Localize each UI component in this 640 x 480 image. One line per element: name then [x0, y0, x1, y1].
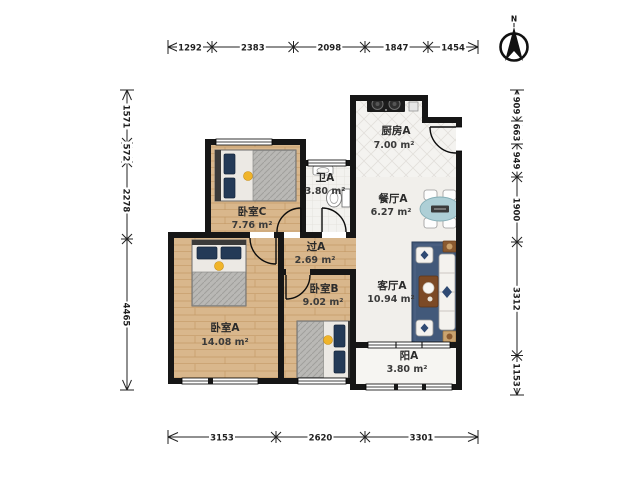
- room-name-dining: 餐厅A: [377, 192, 408, 205]
- bed-bedroom-a-icon: [192, 240, 246, 306]
- room-name-bedroom-c: 卧室C: [238, 205, 267, 218]
- dim-right-2: 663: [511, 124, 521, 142]
- dim-top-5: 1454: [441, 43, 465, 53]
- dim-top-3: 2098: [317, 43, 341, 53]
- compass: N: [501, 15, 528, 62]
- dimension-chain-right: 909 663 949 1900 3312 1153: [510, 90, 524, 395]
- room-name-living: 客厅A: [376, 279, 407, 292]
- sofa-set-icon: [412, 241, 456, 344]
- dim-right-1: 909: [511, 97, 521, 115]
- room-area-bedroom-a: 14.08 m²: [201, 337, 248, 348]
- window-balcony: [366, 384, 452, 390]
- dim-bottom-3: 3301: [410, 433, 434, 443]
- window-bedroom-a: [182, 378, 258, 384]
- entry-opening: [456, 127, 462, 151]
- room-area-dining: 6.27 m²: [371, 207, 412, 218]
- room-area-living: 10.94 m²: [367, 294, 414, 305]
- dimension-chain-bottom: 3153 2620 3301: [168, 430, 478, 444]
- dim-left-4: 4465: [121, 303, 131, 327]
- room-area-kitchen: 7.00 m²: [374, 140, 415, 151]
- window-bedroom-c: [216, 139, 272, 145]
- dimension-chain-top: 1292 2383 2098 1847 1454: [168, 40, 478, 54]
- dim-left-2: 572: [121, 144, 131, 162]
- dim-top-1: 1292: [178, 43, 202, 53]
- dimension-chain-left: 1571 572 2278 4465: [120, 90, 134, 390]
- compass-north-label: N: [511, 15, 517, 24]
- room-name-bedroom-b: 卧室B: [309, 282, 338, 295]
- room-area-bath: 3.80 m²: [305, 186, 346, 197]
- room-area-bedroom-b: 9.02 m²: [303, 297, 344, 308]
- floor-plan: 卧室C 7.76 m² 卫A 3.80 m² 厨房A 7.00 m² 餐厅A 6…: [0, 0, 640, 480]
- window-bedroom-b: [298, 378, 346, 384]
- dim-right-6: 1153: [511, 363, 521, 387]
- dim-right-5: 3312: [511, 287, 521, 311]
- room-name-kitchen: 厨房A: [381, 124, 411, 137]
- bed-bedroom-c-icon: [215, 150, 296, 201]
- room-area-balcony: 3.80 m²: [387, 364, 428, 375]
- window-bath: [308, 160, 346, 166]
- room-name-bedroom-a: 卧室A: [210, 321, 240, 334]
- dim-left-1: 1571: [121, 105, 131, 129]
- room-name-balcony: 阳A: [400, 350, 419, 362]
- floor-plan-page: 卧室C 7.76 m² 卫A 3.80 m² 厨房A 7.00 m² 餐厅A 6…: [0, 0, 640, 480]
- floor-hall-ext: [350, 238, 356, 269]
- dim-bottom-1: 3153: [210, 433, 234, 443]
- dim-right-4: 1900: [511, 198, 521, 222]
- dim-top-2: 2383: [241, 43, 265, 53]
- room-area-hall: 2.69 m²: [295, 255, 336, 266]
- room-area-bedroom-c: 7.76 m²: [232, 220, 273, 231]
- room-name-hall: 过A: [307, 240, 326, 253]
- dim-left-3: 2278: [121, 189, 131, 213]
- dim-top-4: 1847: [385, 43, 409, 53]
- bed-bedroom-b-icon: [297, 321, 352, 378]
- dim-bottom-2: 2620: [309, 433, 333, 443]
- room-name-bath: 卫A: [316, 172, 335, 184]
- window-balcony-door: [368, 342, 450, 348]
- dim-right-3: 949: [511, 152, 521, 170]
